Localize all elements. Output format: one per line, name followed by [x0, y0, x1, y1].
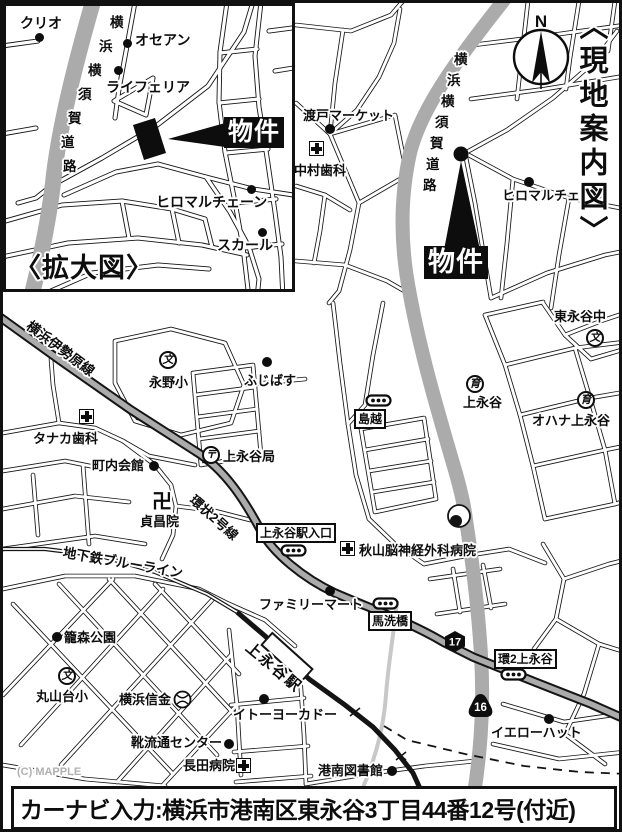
poi-dot — [258, 228, 267, 237]
poi-kaminagaya-post: 上永谷局 — [223, 450, 275, 464]
poi-akiyama-hospital: 秋山脳神経外科病院 — [359, 544, 476, 558]
svg-text:16: 16 — [474, 702, 487, 714]
poi-dot — [262, 357, 272, 367]
poi-higashinagaya-jhs: 東永谷中 — [554, 310, 606, 324]
poi-nagano-elementary: 永野小 — [149, 376, 188, 390]
poi-dot — [224, 739, 234, 749]
poi-fujibasu: ふじばす — [244, 374, 296, 388]
poi-dot — [149, 461, 159, 471]
bus-stop-kaminagaya-entrance: 上永谷駅入口 — [256, 523, 336, 543]
road-name-char: 横 — [441, 95, 455, 109]
carnavi-address-text: カーナビ入力:横浜市港南区東永谷3丁目44番12号(付近) — [20, 791, 575, 825]
poi-dot — [524, 177, 534, 187]
poi-familymart: ファミリーマート — [259, 598, 363, 612]
road-name-char: 道 — [61, 136, 75, 150]
poi-dot — [387, 766, 397, 776]
poi-ito-yokado: イトーヨーカドー — [233, 708, 337, 722]
poi-ohana-kaminagaya: オハナ上永谷 — [532, 414, 610, 428]
poi-yokohama-shinkin: 横浜信金 — [119, 693, 171, 707]
poi-maruyamadai-elementary: 丸山台小 — [36, 690, 88, 704]
poi-dot — [35, 33, 44, 42]
copyright: (C) MAPPLE — [17, 766, 81, 778]
bus-stop-shimagoshi: 島越 — [354, 409, 386, 429]
road-name-char: 賀 — [430, 137, 444, 151]
road-name-char: 道 — [426, 158, 440, 172]
bank-icon — [173, 690, 192, 709]
poi-nagata-hospital: 長田病院 — [183, 759, 235, 773]
poi-watarido-market: 渡戸マーケット — [303, 109, 394, 123]
poi-kagomori-park: 籠森公園 — [64, 631, 116, 645]
road-name-char: 須 — [78, 88, 92, 102]
poi-dot — [325, 124, 335, 134]
bus-stop-kan2-kaminagaya: 環2上永谷 — [494, 649, 557, 669]
road-name-char: 路 — [63, 160, 77, 174]
poi-dot — [114, 66, 123, 75]
property-label-inset: 物件 — [224, 117, 284, 148]
school-icon: 文 — [58, 667, 76, 685]
guide-title: 〈現地案内図〉 — [570, 11, 612, 311]
poi-nakamura-dental: 中村歯科 — [294, 164, 346, 178]
bus-stop-umaarai: 馬洗橋 — [368, 611, 412, 631]
road-name-char: 路 — [423, 179, 437, 193]
poi-dot — [259, 694, 269, 704]
poi-konan-library: 港南図書館 — [318, 764, 383, 778]
poi-dot — [544, 714, 554, 724]
bus-stop-icon — [280, 544, 307, 557]
bus-stop-icon — [365, 394, 392, 407]
hospital-icon — [79, 409, 94, 424]
school-icon: 文 — [586, 329, 604, 347]
carnavi-address-bar: カーナビ入力:横浜市港南区東永谷3丁目44番12号(付近) — [11, 786, 617, 830]
poi-dot — [325, 586, 335, 596]
hospital-icon — [340, 541, 355, 556]
nursery-icon: 育 — [466, 375, 484, 393]
map-frame: 横 浜 横 須 賀 道 路 横浜伊勢原線 環状2号線 地下鉄ブルーライン 上永谷… — [0, 0, 622, 832]
bus-stop-icon — [500, 668, 527, 681]
property-marker-inset — [133, 118, 225, 160]
property-label-main: 物件 — [424, 246, 488, 279]
hospital-icon — [309, 141, 324, 156]
poi-dot — [52, 632, 62, 642]
road-name-char: 浜 — [99, 40, 113, 54]
bus-stop-icon — [372, 597, 399, 610]
road-name-char: 横 — [110, 16, 124, 30]
svg-text:N: N — [535, 12, 547, 31]
temple-icon: 卍 — [152, 492, 172, 513]
road-name-char: 横 — [454, 53, 468, 67]
nursery-icon: 育 — [577, 391, 595, 409]
interchange-circle — [448, 505, 470, 527]
poi-kaminagaya-nursery: 上永谷 — [463, 396, 502, 410]
inset-map: 横 浜 横 須 賀 道 路 クリオ オセアン ライフェリア ヒロマルチェーン ス… — [3, 3, 295, 292]
poi-kurio: クリオ — [20, 16, 62, 31]
poi-dot — [247, 185, 256, 194]
poi-shoe-center: 靴流通センター — [131, 736, 222, 750]
road-name-char: 浜 — [447, 74, 461, 88]
route-17-shield: 17 — [444, 630, 466, 653]
poi-yellow-hat: イエローハット — [491, 726, 582, 740]
poi-sukaru: スカール — [217, 238, 273, 253]
compass-icon: N — [511, 9, 573, 101]
post-office-icon: 〒 — [202, 446, 220, 464]
poi-osean: オセアン — [135, 33, 190, 48]
road-name-char: 横 — [88, 64, 102, 78]
inset-title: 〈拡大図〉 — [14, 254, 154, 282]
poi-dot — [123, 39, 132, 48]
school-icon: 文 — [159, 351, 177, 369]
poi-teishoin: 貞昌院 — [140, 515, 179, 529]
road-name-char: 賀 — [68, 112, 82, 126]
hospital-icon — [236, 758, 251, 773]
poi-tanaka-dental: タナカ歯科 — [33, 432, 98, 446]
road-name-char: 須 — [435, 116, 449, 130]
poi-chonai-kaikan: 町内会館 — [92, 459, 144, 473]
poi-hiromaru-inset: ヒロマルチェーン — [156, 195, 267, 210]
route-16-shield: 16 — [467, 693, 494, 719]
svg-text:17: 17 — [449, 637, 461, 649]
poi-raiferia: ライフェリア — [106, 80, 190, 95]
